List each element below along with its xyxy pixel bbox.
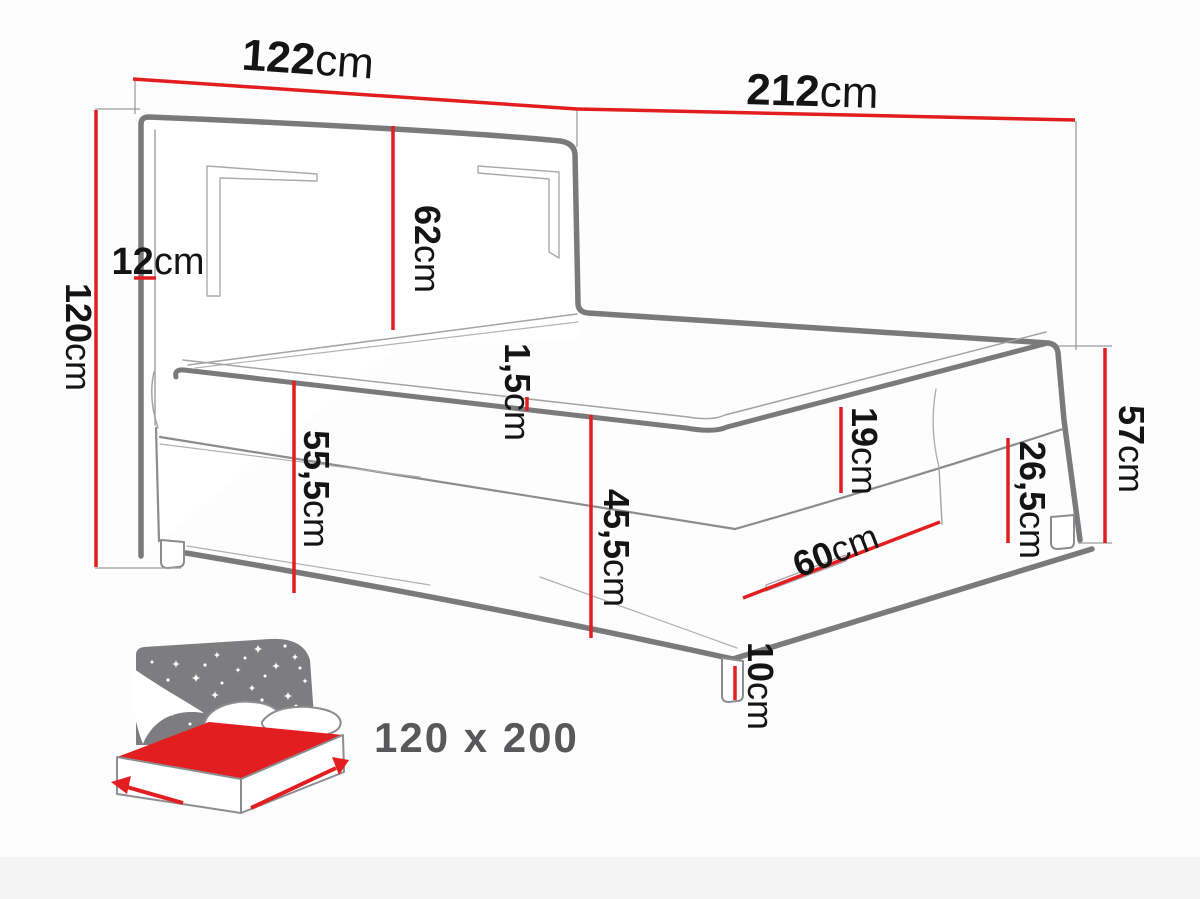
label-10cm: 10cm	[740, 642, 781, 730]
label-19cm: 19cm	[844, 407, 885, 495]
label-122cm: 122cm	[240, 30, 375, 88]
label-12cm: 12cm	[112, 241, 205, 283]
front-leg	[722, 658, 743, 702]
label-55-5cm: 55,5cm	[296, 430, 337, 548]
icon-size-label: 120 x 200	[374, 714, 579, 761]
label-212cm: 212cm	[746, 65, 879, 118]
label-57cm: 57cm	[1111, 405, 1152, 493]
headboard-leg	[161, 540, 184, 568]
rear-leg	[1051, 515, 1074, 549]
label-120cm: 120cm	[58, 283, 99, 391]
label-26-5cm: 26,5cm	[1012, 441, 1053, 559]
label-1-5cm: 1,5cm	[497, 343, 538, 441]
diagram-canvas: 122cm 212cm 12cm 120cm 62cm 1,5cm 55,5cm…	[0, 0, 1200, 899]
bottom-band	[0, 857, 1200, 899]
label-62cm: 62cm	[407, 205, 448, 293]
label-45-5cm: 45,5cm	[596, 489, 637, 607]
